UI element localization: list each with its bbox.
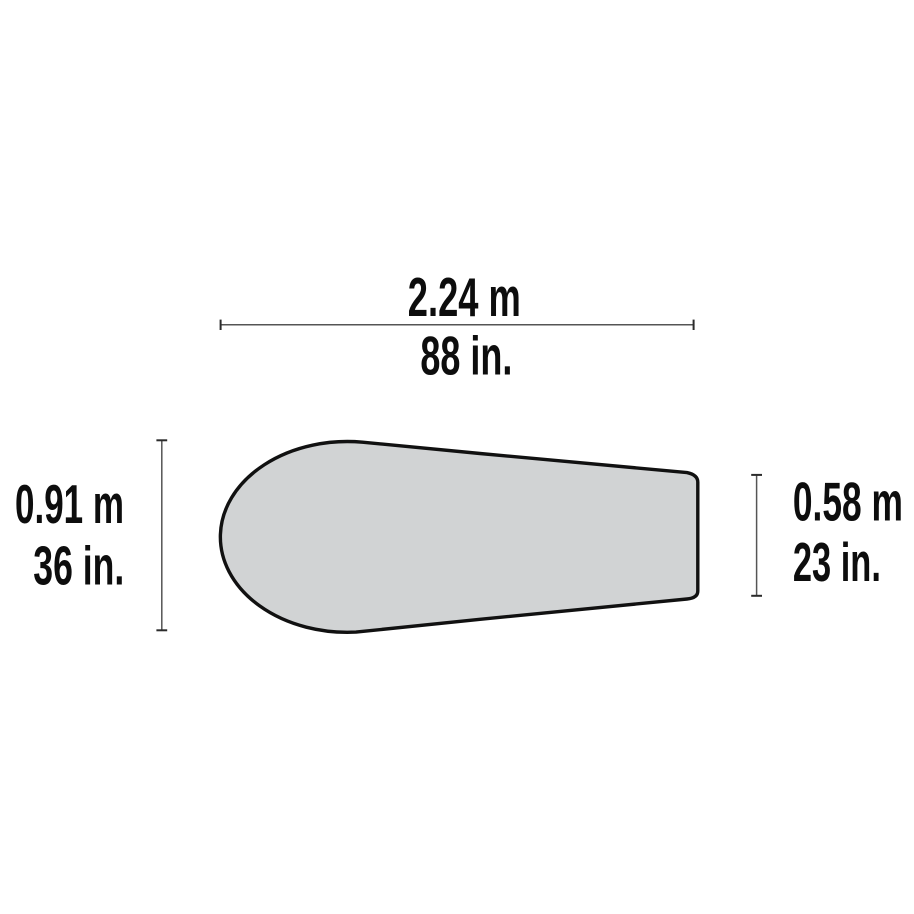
svg-text:88 in.: 88 in.: [420, 325, 512, 387]
svg-text:0.58 m: 0.58 m: [793, 470, 903, 532]
svg-text:2.24 m: 2.24 m: [408, 266, 521, 328]
svg-text:23 in.: 23 in.: [793, 531, 881, 593]
svg-text:36 in.: 36 in.: [33, 535, 124, 597]
svg-text:0.91 m: 0.91 m: [15, 473, 124, 535]
